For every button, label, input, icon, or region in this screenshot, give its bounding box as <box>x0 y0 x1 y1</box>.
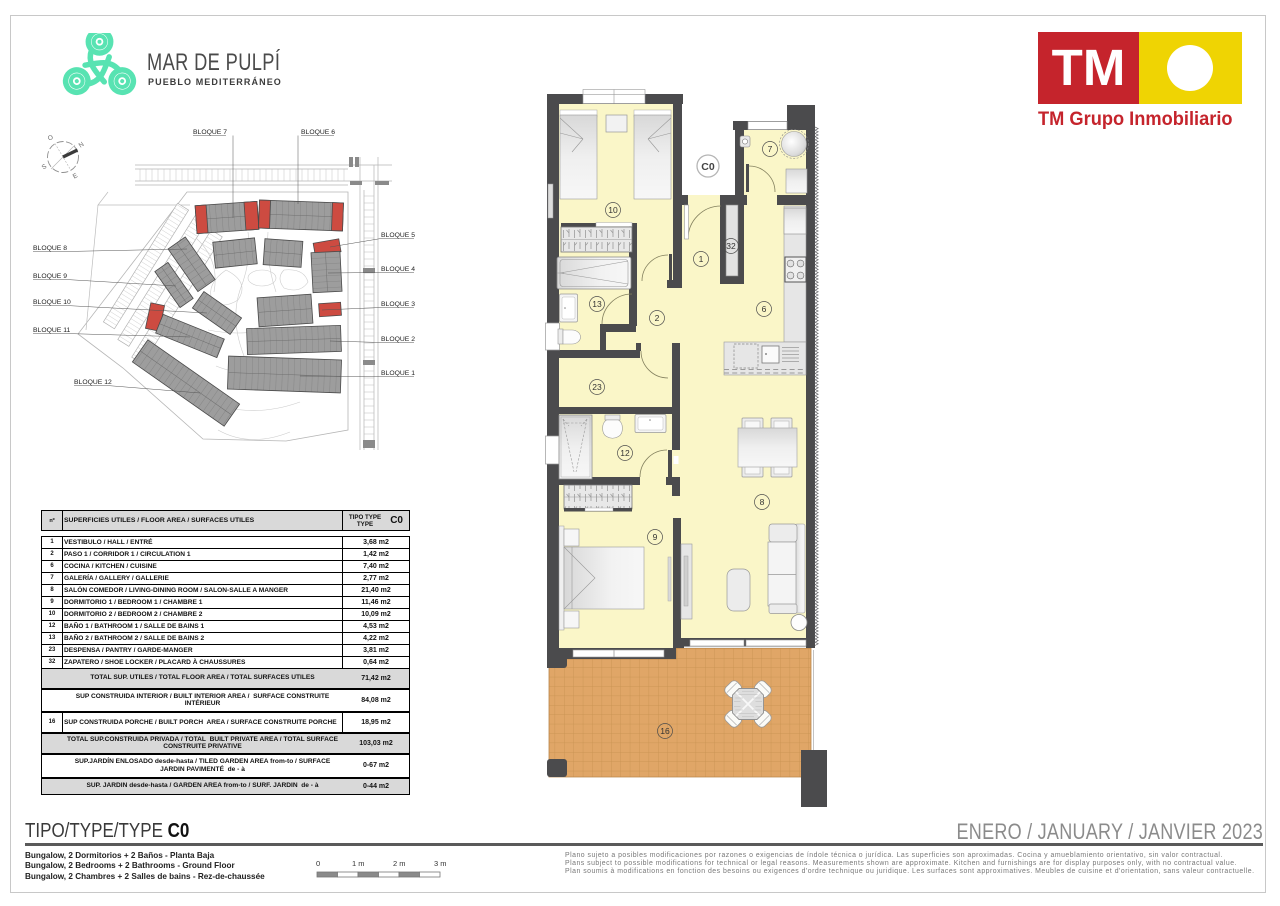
svg-text:BLOQUE 4: BLOQUE 4 <box>381 266 415 273</box>
svg-text:1 m: 1 m <box>352 859 365 868</box>
svg-text:O: O <box>47 134 55 143</box>
svg-text:BLOQUE 12: BLOQUE 12 <box>74 379 112 386</box>
svg-text:1: 1 <box>699 254 704 264</box>
svg-text:BLOQUE 11: BLOQUE 11 <box>33 327 70 334</box>
svg-text:BLOQUE 2: BLOQUE 2 <box>381 336 415 343</box>
svg-text:BLOQUE 7: BLOQUE 7 <box>193 129 227 136</box>
svg-text:BLOQUE 3: BLOQUE 3 <box>381 301 415 308</box>
svg-text:7: 7 <box>768 144 773 154</box>
svg-text:13: 13 <box>592 299 602 309</box>
svg-text:6: 6 <box>762 304 767 314</box>
svg-text:E: E <box>72 172 80 181</box>
svg-text:BLOQUE 9: BLOQUE 9 <box>33 273 67 280</box>
svg-text:BLOQUE 10: BLOQUE 10 <box>33 299 71 306</box>
svg-text:BLOQUE 6: BLOQUE 6 <box>301 129 335 136</box>
svg-text:32: 32 <box>726 241 736 251</box>
svg-text:C0: C0 <box>701 161 715 173</box>
svg-text:0: 0 <box>316 859 320 868</box>
svg-text:N: N <box>78 141 86 150</box>
svg-text:2 m: 2 m <box>393 859 406 868</box>
svg-text:2: 2 <box>655 313 660 323</box>
svg-text:23: 23 <box>592 382 602 392</box>
svg-text:BLOQUE 8: BLOQUE 8 <box>33 245 67 252</box>
svg-text:16: 16 <box>660 726 670 736</box>
svg-text:10: 10 <box>608 205 618 215</box>
svg-text:12: 12 <box>620 448 630 458</box>
svg-text:8: 8 <box>760 497 765 507</box>
svg-text:3 m: 3 m <box>434 859 447 868</box>
svg-text:BLOQUE 5: BLOQUE 5 <box>381 232 415 239</box>
svg-text:S: S <box>41 163 49 172</box>
svg-text:BLOQUE 1: BLOQUE 1 <box>381 370 415 377</box>
svg-text:9: 9 <box>653 532 658 542</box>
